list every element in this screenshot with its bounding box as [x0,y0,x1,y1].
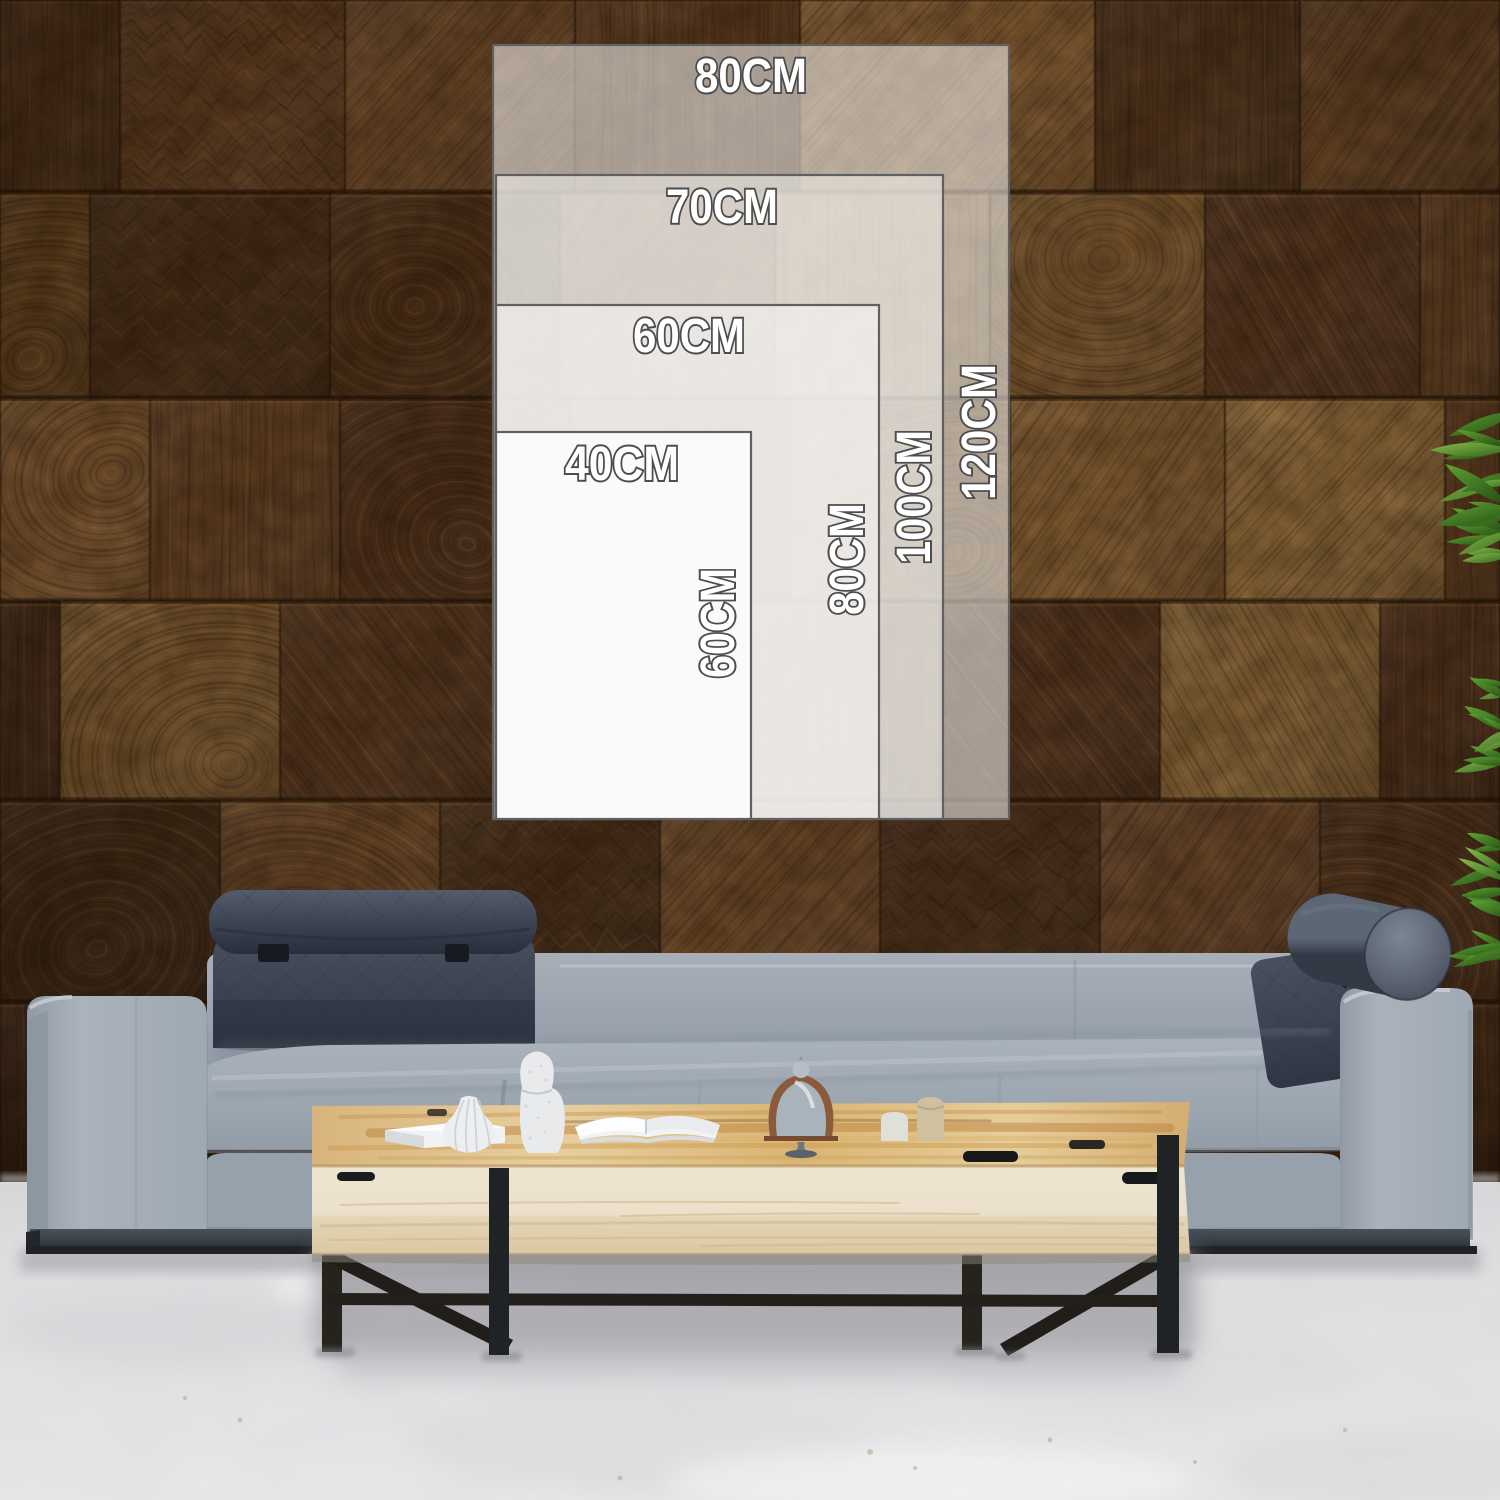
svg-text:60CM: 60CM [633,310,745,363]
svg-text:70CM: 70CM [666,181,778,234]
svg-text:80CM: 80CM [695,50,807,103]
svg-text:80CM: 80CM [821,503,874,615]
svg-text:120CM: 120CM [953,364,1006,500]
svg-text:40CM: 40CM [565,438,679,491]
svg-text:100CM: 100CM [888,430,941,564]
svg-text:60CM: 60CM [692,568,745,678]
